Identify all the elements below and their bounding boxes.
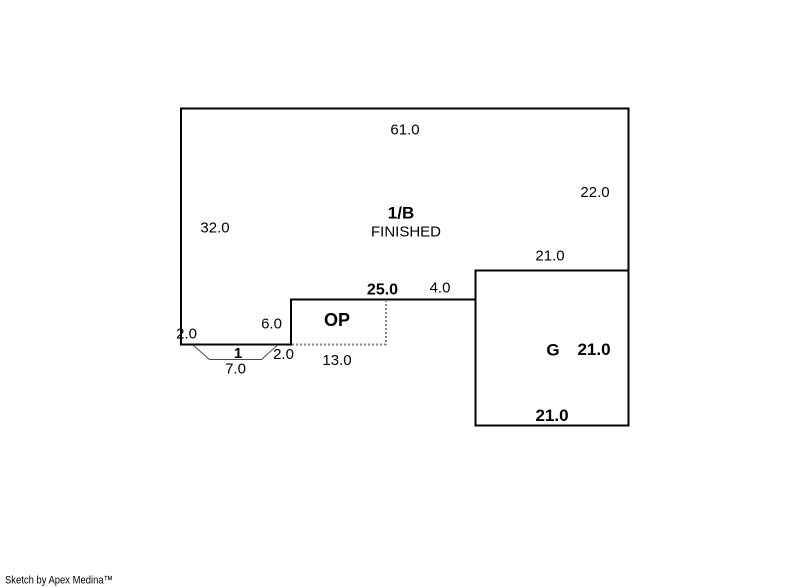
svg-text:21.0: 21.0 <box>535 248 564 265</box>
svg-text:25.0: 25.0 <box>367 282 398 299</box>
svg-text:FINISHED: FINISHED <box>371 224 441 241</box>
svg-text:7.0: 7.0 <box>225 361 246 378</box>
svg-text:22.0: 22.0 <box>580 184 609 201</box>
svg-text:1: 1 <box>234 345 242 362</box>
svg-text:13.0: 13.0 <box>322 352 351 369</box>
svg-text:G: G <box>546 341 559 360</box>
svg-text:2.0: 2.0 <box>273 346 294 363</box>
svg-text:6.0: 6.0 <box>261 316 282 333</box>
svg-text:61.0: 61.0 <box>390 122 419 139</box>
svg-text:1/B: 1/B <box>388 204 414 223</box>
svg-text:21.0: 21.0 <box>535 406 568 425</box>
svg-text:21.0: 21.0 <box>577 340 610 359</box>
svg-text:32.0: 32.0 <box>200 220 229 237</box>
svg-text:2.0: 2.0 <box>176 326 197 343</box>
svg-text:4.0: 4.0 <box>430 280 451 297</box>
svg-text:Sketch by Apex Medina™: Sketch by Apex Medina™ <box>5 575 113 587</box>
svg-text:OP: OP <box>324 310 350 330</box>
